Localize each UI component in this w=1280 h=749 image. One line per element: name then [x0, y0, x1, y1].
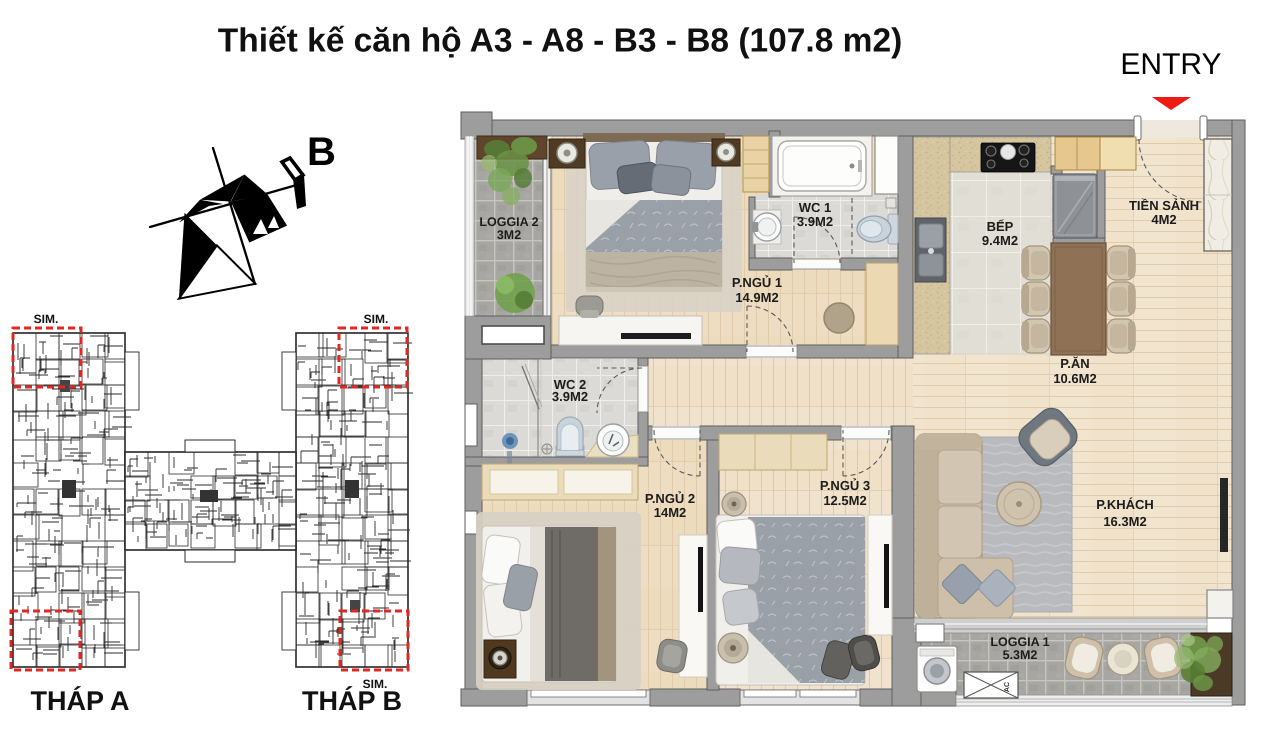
svg-text:P.ĂN: P.ĂN	[1060, 356, 1089, 371]
svg-text:P.NGỦ 2: P.NGỦ 2	[645, 491, 695, 506]
svg-text:AC: AC	[1004, 682, 1011, 692]
svg-text:SIM.: SIM.	[34, 312, 59, 326]
svg-text:THÁP B: THÁP B	[302, 686, 402, 716]
svg-text:3.9M2: 3.9M2	[797, 214, 833, 229]
svg-text:12.5M2: 12.5M2	[823, 493, 866, 508]
svg-text:3M2: 3M2	[497, 228, 521, 242]
svg-text:P.NGỦ 1: P.NGỦ 1	[732, 275, 782, 290]
svg-text:3.9M2: 3.9M2	[552, 389, 588, 404]
svg-text:THÁP A: THÁP A	[30, 686, 129, 716]
svg-text:5.3M2: 5.3M2	[1003, 648, 1038, 662]
svg-text:14.9M2: 14.9M2	[735, 290, 778, 305]
svg-text:WC 1: WC 1	[799, 200, 832, 215]
svg-text:4M2: 4M2	[1151, 212, 1176, 227]
svg-text:SIM.: SIM.	[364, 312, 389, 326]
svg-text:P.NGỦ 3: P.NGỦ 3	[820, 478, 870, 493]
svg-text:BẾP: BẾP	[987, 219, 1014, 234]
svg-text:10.6M2: 10.6M2	[1053, 371, 1096, 386]
svg-text:ENTRY: ENTRY	[1120, 48, 1221, 81]
svg-text:TIỀN SẢNH: TIỀN SẢNH	[1129, 198, 1199, 213]
svg-text:16.3M2: 16.3M2	[1103, 514, 1146, 529]
svg-text:LOGGIA 2: LOGGIA 2	[479, 215, 538, 229]
svg-text:B: B	[307, 130, 336, 174]
svg-text:9.4M2: 9.4M2	[982, 233, 1018, 248]
svg-text:Thiết kế căn hộ A3 - A8 - B3 -: Thiết kế căn hộ A3 - A8 - B3 - B8 (107.8…	[218, 23, 902, 60]
svg-text:14M2: 14M2	[654, 505, 687, 520]
svg-text:P.KHÁCH: P.KHÁCH	[1096, 497, 1154, 512]
svg-text:LOGGIA 1: LOGGIA 1	[990, 635, 1049, 649]
